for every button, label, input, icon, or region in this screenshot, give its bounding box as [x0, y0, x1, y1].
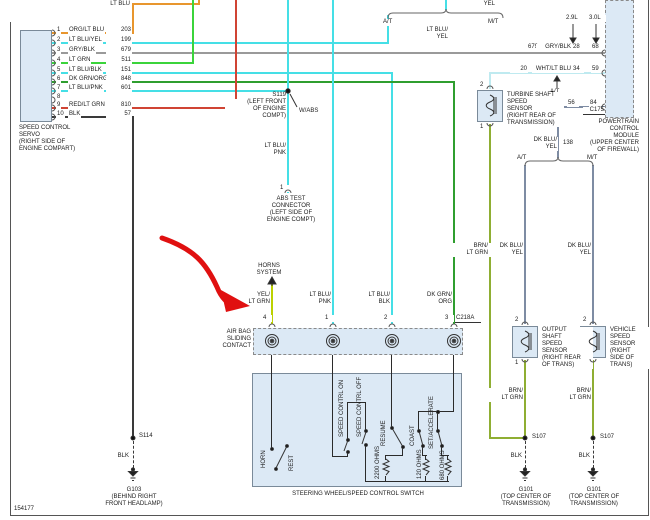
connector-c218a: C218A: [455, 315, 481, 323]
turbine-pin-1: 1: [479, 124, 489, 131]
wire-int: [347, 452, 348, 457]
output-sensor-name-line: SHAFT: [541, 334, 593, 341]
servo-pin-wire-color: ORG/LT BLU: [68, 27, 105, 34]
servo-pin-circuit-number: 203: [106, 27, 132, 34]
wire-cyn: [52, 72, 393, 74]
wire-int: [425, 476, 426, 482]
ground-g101-right-name-line: G101: [558, 487, 630, 494]
switch-label-resume: RESUME: [381, 420, 388, 446]
turbine-pin-2: 2: [479, 82, 489, 89]
wire-label-yel: YEL: [474, 1, 496, 8]
turbine-sensor-name-line: TURBINE SHAFT: [506, 92, 564, 99]
vehicle-pin-2: 2: [582, 317, 592, 324]
wire-int: [332, 355, 333, 373]
cs-pin-2: 2: [383, 315, 393, 322]
wire-int: [418, 411, 454, 412]
splice-s119: S119: [265, 92, 287, 99]
wire-label-lt-blu: LT BLU: [95, 1, 131, 8]
page-border-bottom: [10, 515, 649, 516]
output-pin-2: 2: [514, 317, 524, 324]
pcm-pin-84: 84: [589, 100, 601, 107]
servo-pin-circuit-number: 679: [106, 47, 132, 54]
wire-label-lt-blu-pnk-line: LT BLU/: [249, 143, 287, 150]
servo-pin-number: 9: [56, 102, 61, 109]
w-abs-leader-line: [290, 94, 297, 107]
servo-pin-circuit-number: 810: [106, 102, 132, 109]
wire-cyn: [391, 73, 393, 324]
wire-int: [385, 455, 403, 456]
wire-label-lt-blu-blk-line: LT BLU/: [353, 292, 391, 299]
wire-label-lt-blu-pnk-line: PNK: [249, 150, 287, 157]
ground-g101-left-name-line: (TOP CENTER OF: [490, 494, 562, 501]
horns-system-name-line: SYSTEM: [246, 270, 292, 277]
servo-pin-wire-color: LT BLU/YEL: [68, 37, 103, 44]
wire-olv: [592, 360, 594, 439]
pcm-name-line: MODULE: [578, 133, 640, 140]
output-pin-1: 1: [514, 360, 524, 367]
wire-int: [453, 373, 454, 412]
wiring-diagram-page: 1ORG/LT BLU2032LT BLU/YEL1993GRY/BLK6794…: [0, 0, 650, 520]
servo-pin-wire-color: LT BLU/BLK: [68, 67, 103, 74]
wire-int: [365, 445, 366, 482]
wire-label-blk: BLK: [573, 453, 591, 460]
speed-control-servo-connector: [20, 30, 52, 122]
vehicle-sensor-name-line: TRANS): [609, 362, 650, 369]
output-sensor-name-line: SPEED: [541, 341, 593, 348]
servo-pin-number: 3: [56, 47, 61, 54]
wire-int: [332, 456, 348, 457]
resistor-label-680-ohms: 680 OHMS: [440, 450, 447, 480]
wire-blk: [525, 441, 526, 468]
ground-g101-right-name-line: TRANSMISSION): [558, 501, 630, 508]
diagram-number: 154177: [13, 506, 45, 513]
pcm-pin-56: 56: [567, 100, 579, 107]
wire-cyn: [287, 0, 289, 193]
wire-label-dk-blu-yel-mt-line: YEL: [556, 250, 592, 257]
wire-int: [365, 481, 449, 482]
output-sensor-name-line: SENSOR: [541, 348, 593, 355]
servo-pin-number: 2: [56, 37, 61, 44]
wire-dkg: [453, 82, 455, 324]
servo-pin-circuit-number: 199: [106, 37, 132, 44]
turbine-sensor-name-line: SENSOR: [506, 106, 564, 113]
pcm-name-line: POWERTRAIN: [578, 119, 640, 126]
output-sensor-name-line: (RIGHT REAR: [541, 355, 593, 362]
wire-label-gry-blk: GRY/BLK: [536, 44, 572, 51]
wire-label-brn-lt-grn-line: BRN/: [453, 243, 489, 250]
ground-g101-left-name-line: G101: [490, 487, 562, 494]
wire-org: [198, 0, 200, 5]
servo-pin-number: 6: [56, 76, 61, 83]
turbine-sensor-name-line: TRANSMISSION): [506, 120, 564, 127]
abs-pin-1: 1: [279, 185, 289, 192]
wire-gry: [52, 52, 605, 54]
servo-pin-circuit-number: 848: [106, 76, 132, 83]
switch-label-rest: REST: [289, 455, 296, 471]
wire-int: [271, 373, 272, 449]
note-2-9l: 2.9L: [565, 15, 583, 22]
abs-connector-name-line: (LEFT SIDE OF: [258, 210, 324, 217]
ground-icon: [589, 468, 598, 481]
resistor-label-2200-ohms: 2200 OHMS: [375, 446, 382, 479]
ground-g101-left-name-line: TRANSMISSION): [490, 501, 562, 508]
wire-label-brn-lt-grn-out-line: BRN/: [488, 388, 524, 395]
splice-s114: S114: [138, 433, 160, 440]
switch-label-speed-contrl-on: SPEED CONTRL ON: [339, 380, 346, 437]
wire-label-brn-lt-grn-line: LT GRN: [453, 250, 489, 257]
switch-label-set-accelerate: SET/ACCELERATE: [429, 396, 436, 449]
cs-pin-3: 3: [444, 315, 454, 322]
servo-pin-circuit-number: 601: [106, 85, 132, 92]
cs-pin-1: 1: [324, 315, 334, 322]
air-bag-sliding-contact-name-line: AIR BAG: [210, 329, 252, 336]
turbine-sensor-name-line: SPEED: [506, 99, 564, 106]
servo-pin-circuit-number: 511: [106, 57, 132, 64]
page-border-right: [648, 0, 649, 515]
wire-org: [132, 3, 200, 5]
switch-label-horn: HORN: [261, 450, 268, 468]
turbine-sensor-name-line: (RIGHT REAR OF: [506, 113, 564, 120]
wire-label-dk-blu-yel-line: YEL: [522, 144, 558, 151]
wire-label-dk-blu-yel-at-line: YEL: [488, 250, 524, 257]
circuit-20: 20: [510, 66, 528, 73]
pcm-pin-68: 68: [591, 44, 603, 51]
wire-label-lt-blu-pnk-cs-line: PNK: [294, 299, 332, 306]
brace-at-mt-top: [388, 9, 503, 18]
wire-int: [418, 412, 419, 431]
switch-label-coast: COAST: [410, 425, 417, 446]
ground-g101-right-name-line: (TOP CENTER OF: [558, 494, 630, 501]
servo-pin-number: 4: [56, 57, 61, 64]
pcm-name-line: (UPPER CENTER: [578, 140, 640, 147]
wire-label-blk: BLK: [505, 453, 523, 460]
switch-label-speed-contrl-off: SPEED CONTRL OFF: [357, 377, 364, 437]
servo-pin-wire-color: BLK: [68, 111, 81, 118]
pcm-pin-34: 34: [572, 66, 584, 73]
horns-system-name-line: HORNS: [246, 263, 292, 270]
pcm-pin-59: 59: [591, 66, 603, 73]
wire-olv: [489, 437, 526, 439]
servo-pin-number: 1: [56, 27, 61, 34]
wire-int: [385, 476, 386, 482]
wire-grn: [192, 0, 194, 64]
wire-int: [391, 355, 392, 373]
wire-olv: [524, 360, 526, 439]
s119-location-line: COMPT): [225, 113, 287, 120]
splice-s107-right: S107: [599, 434, 621, 441]
ground-g103-name-line: (BEHIND RIGHT: [103, 494, 165, 501]
wire-red: [235, 0, 237, 109]
output-sensor-name-line: OF TRANS): [541, 362, 593, 369]
ground-icon: [129, 468, 138, 481]
s119-location-line: OF ENGINE: [225, 106, 287, 113]
wire-dkb: [592, 165, 594, 324]
servo-pin-number: 8: [56, 94, 61, 101]
servo-pin-wire-color: RED/LT GRN: [68, 102, 106, 109]
wire-label-lt-blu-blk-line: BLK: [353, 299, 391, 306]
servo-pin-circuit-number: 57: [106, 111, 132, 118]
servo-pin-number: 10: [56, 111, 65, 118]
servo-name-line: SERVO: [18, 132, 84, 139]
servo-pin-number: 7: [56, 85, 61, 92]
turbine-speed-sensor-box: [477, 90, 503, 122]
note-w-abs: W/ABS: [298, 108, 324, 115]
air-bag-sliding-contact-name-line: SLIDING: [210, 336, 252, 343]
wire-int: [365, 403, 366, 431]
wire-blk: [132, 117, 134, 438]
wire-label-lt-blu-yel-line: YEL: [407, 34, 449, 41]
wire-cyn: [445, 0, 447, 10]
note-at-lower: A/T: [516, 155, 532, 162]
vehicle-sensor-name-line: SPEED: [609, 334, 650, 341]
pcm-box: [605, 0, 634, 118]
wire-label-brn-lt-grn-veh-line: LT GRN: [556, 395, 592, 402]
wire-int: [447, 455, 448, 460]
wire-int: [332, 373, 333, 457]
servo-name-line: ENGINE COMPART): [18, 146, 84, 153]
splice-s107-left: S107: [531, 434, 553, 441]
wire-int: [385, 455, 386, 460]
arrow-3-0l: [593, 24, 599, 43]
wire-label-dk-blu-yel-line: DK BLU/: [522, 137, 558, 144]
arrow-2-9l: [570, 24, 576, 43]
wire-label-wht-lt-blu: WHT/LT BLU: [532, 66, 572, 73]
abs-connector-name-line: ENGINE COMPT): [258, 217, 324, 224]
wire-int: [437, 412, 438, 431]
cs-pin-4: 4: [262, 315, 272, 322]
note-mt-lower: M/T: [586, 155, 602, 162]
servo-pin-circuit-number: 151: [106, 67, 132, 74]
wire-label-yel-lt-grn-line: LT GRN: [233, 299, 271, 306]
wire-int: [447, 476, 448, 482]
ground-g103-name-line: FRONT HEADLAMP): [103, 501, 165, 508]
vehicle-sensor-name-line: (RIGHT: [609, 348, 650, 355]
note-3-0l: 3.0L: [588, 15, 606, 22]
page-border-left: [10, 22, 11, 515]
wire-label-brn-lt-grn-out-line: LT GRN: [488, 395, 524, 402]
connector-c175: C175: [583, 107, 605, 115]
servo-name-line: (RIGHT SIDE OF: [18, 139, 84, 146]
wire-int: [425, 455, 426, 460]
note-at: A/T: [382, 19, 398, 26]
air-bag-sliding-contact-name-line: CONTACT: [210, 343, 252, 350]
wire-int: [453, 355, 454, 373]
wire-label-dk-grn-org-line: ORG: [415, 299, 453, 306]
wire-label-dk-blu-yel-mt-line: DK BLU/: [556, 243, 592, 250]
air-bag-sliding-contact-box: [253, 328, 463, 355]
wire-label-brn-lt-grn-veh-line: BRN/: [556, 388, 592, 395]
servo-pin-wire-color: GRY/BLK: [68, 47, 96, 54]
servo-pin-wire-color: DK GRN/ORG: [68, 76, 109, 83]
wire-label-lt-blu-yel-line: LT BLU/: [407, 27, 449, 34]
wire-org: [132, 4, 134, 33]
wire-label-dk-blu-yel-at-line: DK BLU/: [488, 243, 524, 250]
wire-int: [347, 403, 348, 440]
vehicle-sensor-name-line: VEHICLE: [609, 327, 650, 334]
servo-pin-wire-color: LT BLU/PNK: [68, 85, 104, 92]
wire-label-yel-lt-grn-line: YEL/: [233, 292, 271, 299]
pcm-name-line: CONTROL: [578, 126, 640, 133]
pcm-name-line: OF FIREWALL): [578, 147, 640, 154]
resistor-label-120-ohms: 120 OHMS: [417, 449, 424, 479]
wire-blk: [133, 441, 134, 468]
ground-g103-name-line: G103: [103, 487, 165, 494]
abs-connector-name-line: CONNECTOR: [258, 203, 324, 210]
wire-label-blk: BLK: [112, 453, 130, 460]
s119-location-line: (LEFT FRONT: [225, 99, 287, 106]
note-mt: M/T: [487, 19, 503, 26]
arrow-at-up: [554, 76, 560, 88]
vehicle-sensor-name-line: SENSOR: [609, 341, 650, 348]
wire-blk: [593, 441, 594, 468]
pcm-pin-28: 28: [572, 44, 584, 51]
output-sensor-name-line: OUTPUT: [541, 327, 593, 334]
wire-label-dk-grn-org-line: DK GRN/: [415, 292, 453, 299]
wire-cyn: [332, 0, 334, 324]
brace-at-mt-lower: [525, 157, 593, 166]
servo-pin-number: 5: [56, 67, 61, 74]
wire-dkb: [524, 165, 526, 324]
servo-pin-wire-color: LT GRN: [68, 57, 91, 64]
ground-icon: [521, 468, 530, 481]
servo-name-line: SPEED CONTROL: [18, 125, 84, 132]
switch-caption: STEERING WHEEL/SPEED CONTROL SWITCH: [257, 491, 459, 498]
wire-wht: [489, 73, 491, 89]
output-shaft-speed-sensor-box: [512, 326, 538, 358]
vehicle-sensor-name-line: SIDE OF: [609, 355, 650, 362]
abs-connector-name-line: ABS TEST: [258, 196, 324, 203]
wire-label-lt-blu-pnk-cs-line: LT BLU/: [294, 292, 332, 299]
wire-int: [391, 373, 392, 428]
wire-int: [271, 355, 272, 373]
